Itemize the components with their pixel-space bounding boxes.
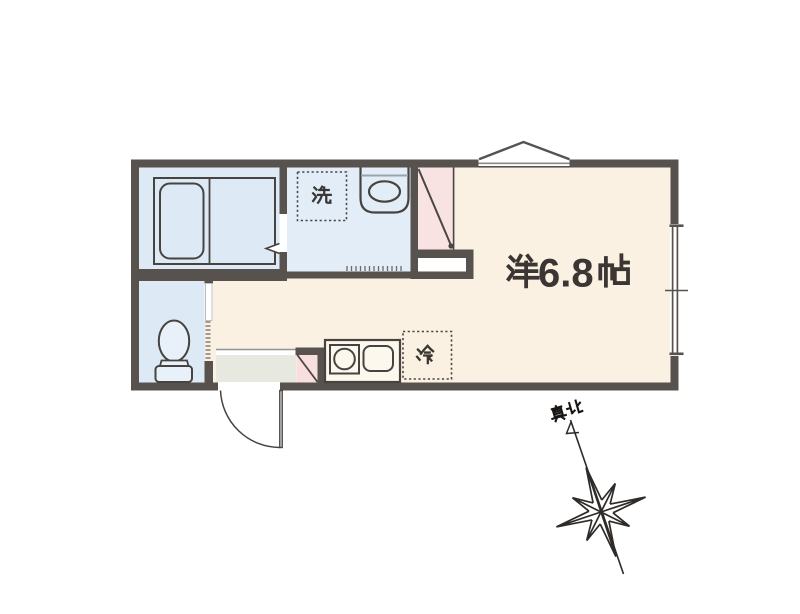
- svg-text:6.8: 6.8: [538, 252, 594, 296]
